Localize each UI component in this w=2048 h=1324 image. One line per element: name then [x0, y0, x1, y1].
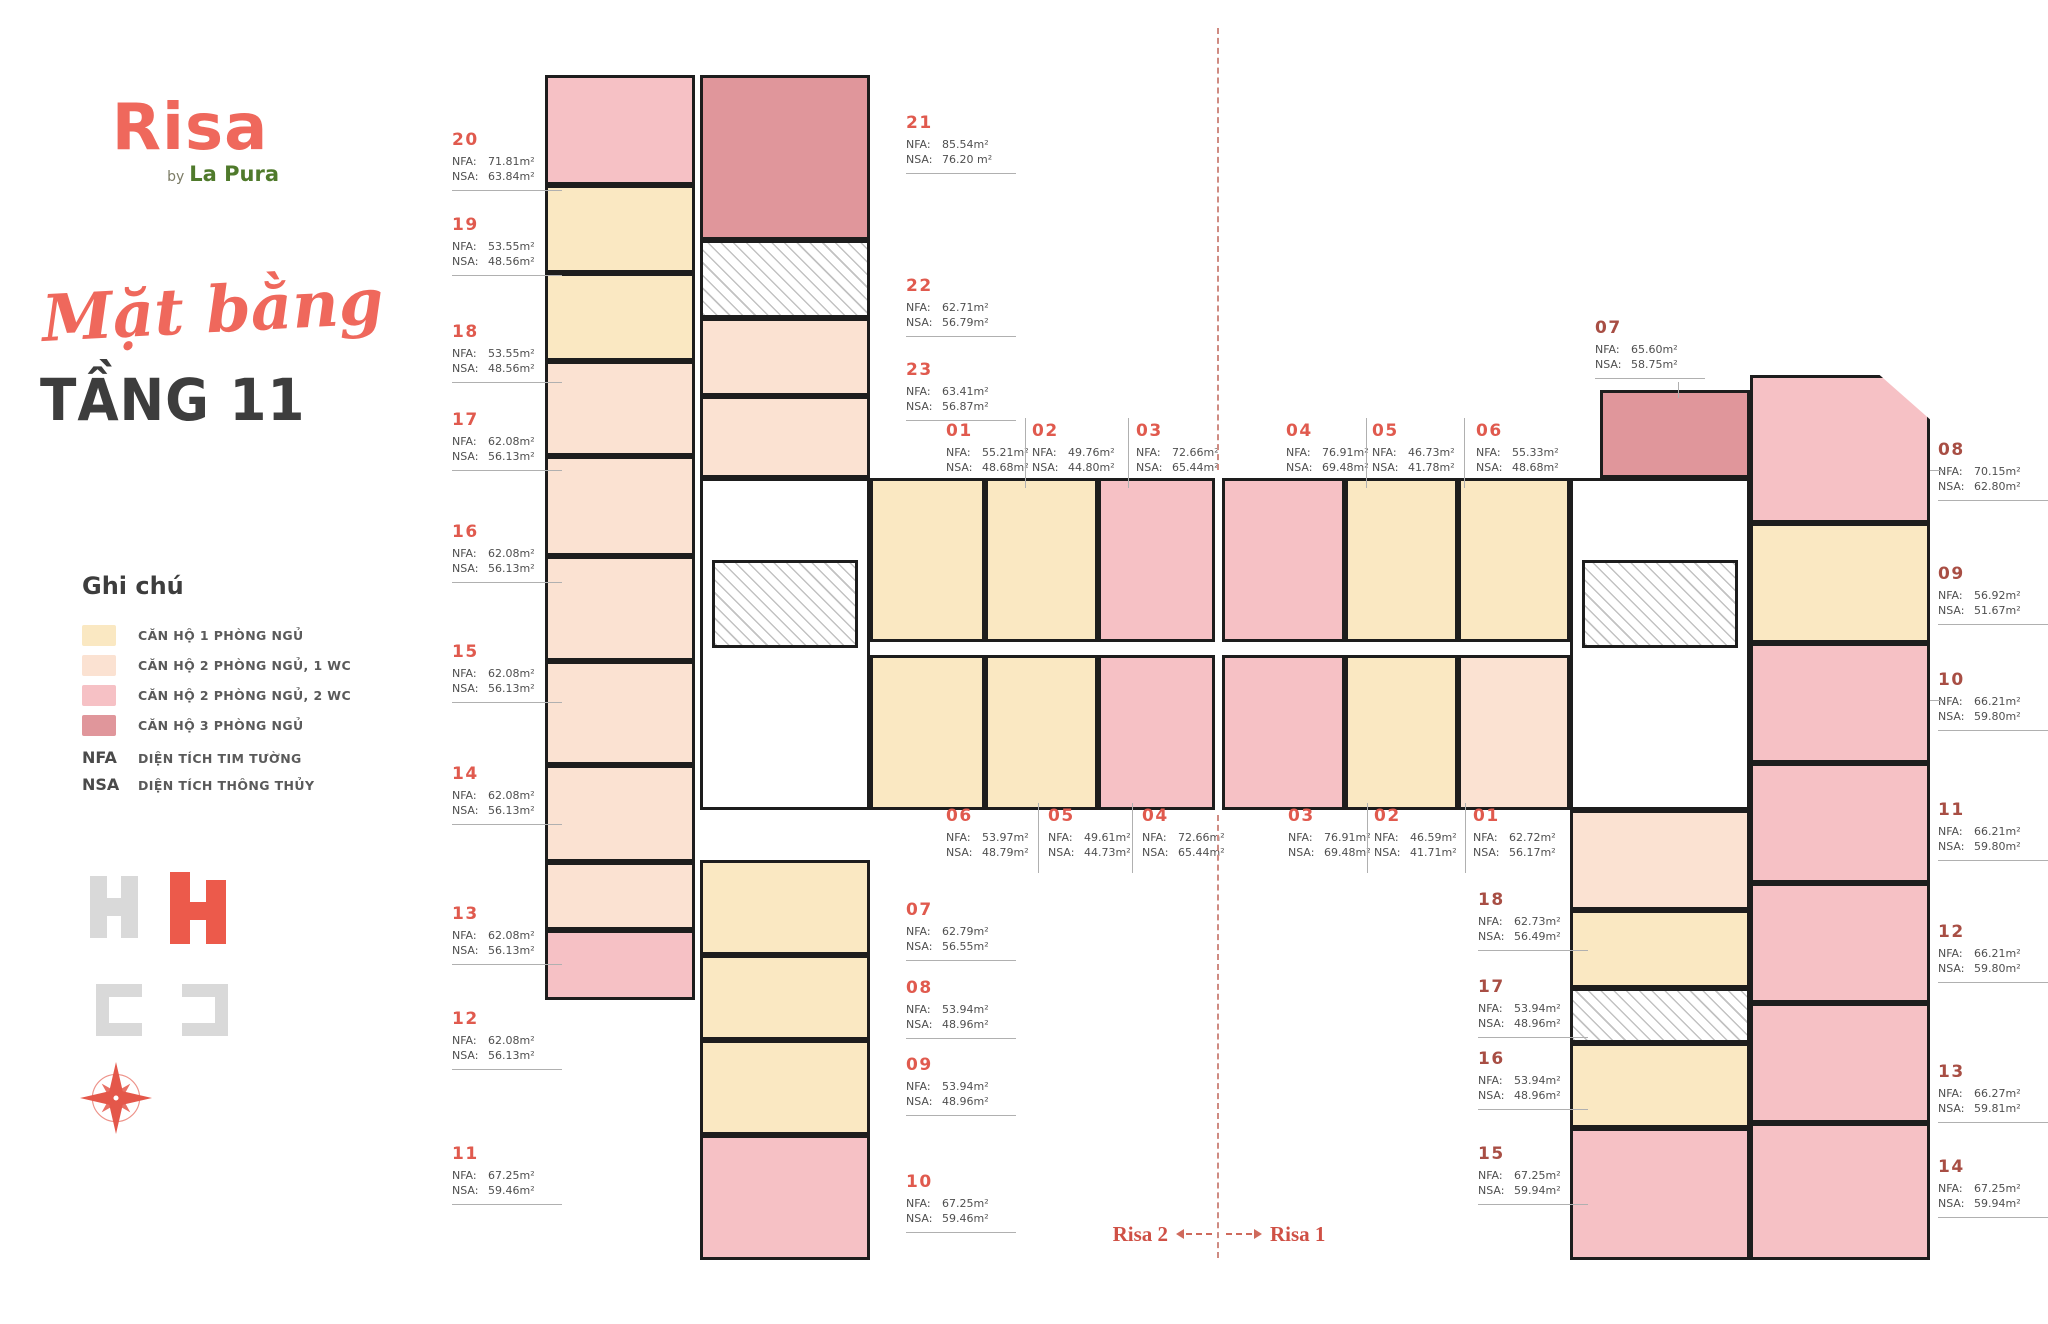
page-title-floor: TẦNG 11 [40, 366, 305, 434]
area-key: NSA: [906, 1017, 942, 1032]
legend-swatch-t3 [82, 685, 116, 706]
area-key: NFA: [1938, 464, 1974, 479]
area-value: 72.66m² [1172, 445, 1219, 460]
area-value: 53.55m² [488, 346, 535, 361]
area-value: 62.72m² [1509, 830, 1556, 845]
plan-unit-r2-08 [700, 955, 870, 1040]
area-key: NFA: [452, 434, 488, 449]
plan-unit-r2-19 [545, 185, 695, 273]
plan-unit-r2-11 [545, 930, 695, 1000]
area-value: 65.44m² [1172, 460, 1219, 475]
legend-swatch-t4 [82, 715, 116, 736]
unit-label-left_outer-18: 18NFA:53.55m²NSA:48.56m² [452, 322, 562, 383]
unit-label-risa1_right-11: 11NFA:66.21m²NSA:59.80m² [1938, 800, 2048, 861]
legend-abbr-NFA: NFADIỆN TÍCH TIM TƯỜNG [82, 748, 314, 775]
area-row: NFA:53.55m² [452, 346, 562, 361]
area-row: NSA:59.81m² [1938, 1101, 2048, 1116]
area-row: NSA:56.13m² [452, 943, 562, 958]
area-row: NSA:59.80m² [1938, 839, 2048, 854]
legend-abbreviations: NFADIỆN TÍCH TIM TƯỜNGNSADIỆN TÍCH THÔNG… [82, 748, 314, 802]
area-row: NFA:66.27m² [1938, 1086, 2048, 1101]
area-key: NFA: [1478, 1001, 1514, 1016]
unit-number: 09 [906, 1055, 1016, 1075]
unit-label-left_outer-20: 20NFA:71.81m²NSA:63.84m² [452, 130, 562, 191]
area-key: NSA: [452, 254, 488, 269]
unit-number: 11 [452, 1144, 562, 1164]
area-key: NFA: [1288, 830, 1324, 845]
area-row: NSA:48.96m² [906, 1017, 1016, 1032]
unit-number: 06 [1476, 421, 1586, 441]
area-value: 59.46m² [488, 1183, 535, 1198]
plan-unit-c-01 [870, 478, 985, 642]
area-key: NFA: [1595, 342, 1631, 357]
unit-label-center_top-03: 03NFA:72.66m²NSA:65.44m² [1136, 421, 1246, 475]
area-key: NFA: [1478, 914, 1514, 929]
plan-unit-r1-08 [1750, 375, 1930, 523]
area-row: NFA:62.08m² [452, 546, 562, 561]
unit-label-center_top-06: 06NFA:55.33m²NSA:48.68m² [1476, 421, 1586, 475]
area-key: NSA: [946, 845, 982, 860]
unit-label-risa1_right-08: 08NFA:70.15m²NSA:62.80m² [1938, 440, 2048, 501]
area-value: 76.91m² [1324, 830, 1371, 845]
logo-by: by [167, 169, 184, 185]
area-value: 56.87m² [942, 399, 989, 414]
brand-logo: Risa byLa Pura [95, 96, 285, 186]
area-row: NSA:62.80m² [1938, 479, 2048, 494]
area-key: NFA: [1938, 588, 1974, 603]
area-value: 76.20 m² [942, 152, 992, 167]
unit-label-risa1_inner-16: 16NFA:53.94m²NSA:48.96m² [1478, 1049, 1588, 1110]
area-value: 62.08m² [488, 788, 535, 803]
area-key: NSA: [1473, 845, 1509, 860]
area-row: NSA:48.68m² [1476, 460, 1586, 475]
leader-line [1930, 470, 1944, 471]
area-row: NFA:53.94m² [1478, 1001, 1588, 1016]
plan-unit-c-01b [1458, 655, 1570, 810]
area-row: NSA:48.96m² [1478, 1088, 1588, 1103]
plan-unit-r1-09 [1750, 523, 1930, 643]
area-key: NSA: [452, 561, 488, 576]
plan-unit-c-03 [1098, 478, 1215, 642]
area-key: NSA: [1938, 603, 1974, 618]
area-value: 41.71m² [1410, 845, 1457, 860]
area-row: NFA:62.08m² [452, 928, 562, 943]
area-value: 49.76m² [1068, 445, 1115, 460]
legend-abbr-NSA: NSADIỆN TÍCH THÔNG THỦY [82, 775, 314, 802]
wing-label-risa1: Risa 1 [1270, 1222, 1358, 1247]
area-value: 48.96m² [942, 1017, 989, 1032]
unit-label-left_outer-19: 19NFA:53.55m²NSA:48.56m² [452, 215, 562, 276]
area-value: 48.96m² [1514, 1088, 1561, 1103]
arrow-left-icon [1176, 1229, 1184, 1239]
unit-number: 19 [452, 215, 562, 235]
area-value: 59.80m² [1974, 709, 2021, 724]
area-row: NFA:67.25m² [1478, 1168, 1588, 1183]
plan-unit-r1-core-a [1582, 560, 1738, 648]
area-value: 41.78m² [1408, 460, 1455, 475]
unit-label-center_top-02: 02NFA:49.76m²NSA:44.80m² [1032, 421, 1142, 475]
area-key: NSA: [1142, 845, 1178, 860]
area-value: 56.49m² [1514, 929, 1561, 944]
arrow-right-icon [1254, 1229, 1262, 1239]
area-key: NSA: [1938, 1196, 1974, 1211]
area-row: NSA:56.49m² [1478, 929, 1588, 944]
plan-unit-c-02b [1345, 655, 1458, 810]
area-value: 56.92m² [1974, 588, 2021, 603]
area-row: NSA:65.44m² [1142, 845, 1252, 860]
area-value: 53.94m² [1514, 1073, 1561, 1088]
plan-unit-r2-10 [700, 1135, 870, 1260]
abbr-label: DIỆN TÍCH THÔNG THỦY [138, 778, 314, 793]
area-row: NSA:48.56m² [452, 254, 562, 269]
abbr-label: DIỆN TÍCH TIM TƯỜNG [138, 751, 302, 766]
area-row: NFA:67.25m² [452, 1168, 562, 1183]
unit-label-center_bottom-01: 01NFA:62.72m²NSA:56.17m² [1473, 806, 1583, 860]
area-value: 85.54m² [942, 137, 989, 152]
area-key: NSA: [1938, 479, 1974, 494]
area-value: 53.94m² [942, 1079, 989, 1094]
area-row: NFA:62.71m² [906, 300, 1016, 315]
legend-label: CĂN HỘ 2 PHÒNG NGỦ, 2 WC [138, 688, 351, 703]
area-value: 71.81m² [488, 154, 535, 169]
logo-byline: byLa Pura [95, 162, 285, 186]
area-row: NFA:66.21m² [1938, 946, 2048, 961]
area-key: NFA: [906, 137, 942, 152]
unit-label-risa1_top-07: 07NFA:65.60m²NSA:58.75m² [1595, 318, 1705, 379]
unit-label-center_bottom-04: 04NFA:72.66m²NSA:65.44m² [1142, 806, 1252, 860]
area-row: NFA:62.08m² [452, 434, 562, 449]
area-key: NSA: [1136, 460, 1172, 475]
area-value: 55.33m² [1512, 445, 1559, 460]
plan-unit-r1-15 [1570, 1128, 1750, 1260]
area-row: NFA:85.54m² [906, 137, 1016, 152]
keyplan-current-building [170, 872, 226, 944]
area-key: NFA: [452, 666, 488, 681]
area-value: 67.25m² [942, 1196, 989, 1211]
plan-unit-r2-15 [545, 556, 695, 661]
unit-number: 13 [1938, 1062, 2048, 1082]
area-key: NFA: [452, 1168, 488, 1183]
unit-number: 06 [946, 806, 1056, 826]
unit-label-risa2_inner_bottom-08: 08NFA:53.94m²NSA:48.96m² [906, 978, 1016, 1039]
area-key: NSA: [452, 943, 488, 958]
area-key: NFA: [1938, 946, 1974, 961]
area-row: NFA:62.08m² [452, 1033, 562, 1048]
plan-unit-r1-core-c [1570, 988, 1750, 1043]
area-key: NFA: [946, 830, 982, 845]
area-key: NFA: [1478, 1073, 1514, 1088]
area-row: NSA:41.78m² [1372, 460, 1482, 475]
area-key: NFA: [906, 924, 942, 939]
unit-number: 08 [1938, 440, 2048, 460]
area-key: NSA: [452, 803, 488, 818]
area-row: NFA:62.79m² [906, 924, 1016, 939]
unit-number: 02 [1374, 806, 1484, 826]
area-row: NFA:46.59m² [1374, 830, 1484, 845]
area-value: 56.17m² [1509, 845, 1556, 860]
plan-unit-r1-11 [1750, 763, 1930, 883]
floorplan-page: Risa byLa Pura Mặt bằng TẦNG 11 Ghi chú … [0, 0, 2048, 1324]
leader-line [1025, 418, 1026, 488]
area-row: NFA:62.08m² [452, 666, 562, 681]
area-row: NSA:56.79m² [906, 315, 1016, 330]
unit-label-risa2_inner_bottom-09: 09NFA:53.94m²NSA:48.96m² [906, 1055, 1016, 1116]
area-row: NFA:55.33m² [1476, 445, 1586, 460]
area-value: 53.55m² [488, 239, 535, 254]
area-key: NSA: [1938, 961, 1974, 976]
area-key: NFA: [1938, 1086, 1974, 1101]
area-value: 66.21m² [1974, 946, 2021, 961]
area-key: NSA: [452, 681, 488, 696]
area-value: 59.94m² [1514, 1183, 1561, 1198]
area-row: NSA:56.13m² [452, 561, 562, 576]
area-value: 44.73m² [1084, 845, 1131, 860]
area-key: NFA: [906, 1196, 942, 1211]
unit-number: 15 [1478, 1144, 1588, 1164]
area-row: NSA:56.13m² [452, 449, 562, 464]
area-key: NSA: [452, 169, 488, 184]
area-value: 59.80m² [1974, 961, 2021, 976]
area-value: 63.41m² [942, 384, 989, 399]
legend-heading: Ghi chú [82, 572, 184, 600]
area-value: 69.48m² [1322, 460, 1369, 475]
area-row: NFA:53.94m² [906, 1002, 1016, 1017]
plan-unit-r2-12 [545, 862, 695, 930]
area-key: NFA: [452, 346, 488, 361]
area-row: NSA:59.46m² [906, 1211, 1016, 1226]
area-key: NSA: [1938, 709, 1974, 724]
area-key: NFA: [1938, 824, 1974, 839]
unit-number: 14 [1938, 1157, 2048, 1177]
area-row: NSA:44.80m² [1032, 460, 1142, 475]
unit-label-left_outer-11: 11NFA:67.25m²NSA:59.46m² [452, 1144, 562, 1205]
area-value: 56.13m² [488, 561, 535, 576]
unit-label-risa2_inner_top-22: 22NFA:62.71m²NSA:56.79m² [906, 276, 1016, 337]
area-key: NSA: [452, 361, 488, 376]
plan-unit-c-04b [1098, 655, 1215, 810]
area-value: 70.15m² [1974, 464, 2021, 479]
area-value: 48.79m² [982, 845, 1029, 860]
area-key: NSA: [1938, 1101, 1974, 1116]
plan-unit-r1-10 [1750, 643, 1930, 763]
area-row: NFA:53.94m² [906, 1079, 1016, 1094]
leader-line [1366, 418, 1367, 488]
leader-line [1930, 700, 1944, 701]
area-value: 67.25m² [488, 1168, 535, 1183]
area-key: NFA: [1048, 830, 1084, 845]
area-key: NSA: [1595, 357, 1631, 372]
area-value: 46.59m² [1410, 830, 1457, 845]
area-key: NSA: [1288, 845, 1324, 860]
area-key: NFA: [906, 1079, 942, 1094]
area-row: NSA:48.96m² [1478, 1016, 1588, 1031]
unit-number: 07 [906, 900, 1016, 920]
area-key: NSA: [1478, 929, 1514, 944]
unit-label-risa2_inner_top-21: 21NFA:85.54m²NSA:76.20 m² [906, 113, 1016, 174]
legend-label: CĂN HỘ 2 PHÒNG NGỦ, 1 WC [138, 658, 351, 673]
unit-label-risa2_inner_top-23: 23NFA:63.41m²NSA:56.87m² [906, 360, 1016, 421]
plan-unit-c-04 [1222, 478, 1345, 642]
unit-number: 03 [1136, 421, 1246, 441]
legend-items: CĂN HỘ 1 PHÒNG NGỦCĂN HỘ 2 PHÒNG NGỦ, 1 … [82, 620, 351, 740]
plan-unit-r1-16 [1570, 1043, 1750, 1128]
area-value: 62.08m² [488, 666, 535, 681]
abbr-key: NSA [82, 775, 138, 794]
area-key: NFA: [452, 154, 488, 169]
leader-line [1464, 418, 1465, 488]
plan-unit-r2-22 [700, 318, 870, 396]
area-value: 53.97m² [982, 830, 1029, 845]
plan-unit-r2-21 [700, 75, 870, 240]
area-key: NSA: [452, 1048, 488, 1063]
unit-label-left_outer-15: 15NFA:62.08m²NSA:56.13m² [452, 642, 562, 703]
area-key: NFA: [906, 300, 942, 315]
area-key: NFA: [452, 546, 488, 561]
area-value: 62.79m² [942, 924, 989, 939]
plan-unit-r1-07 [1600, 390, 1750, 478]
leader-line [1038, 803, 1039, 873]
area-key: NFA: [1476, 445, 1512, 460]
area-value: 62.08m² [488, 1033, 535, 1048]
unit-number: 05 [1372, 421, 1482, 441]
legend-item-t2: CĂN HỘ 2 PHÒNG NGỦ, 1 WC [82, 650, 351, 680]
plan-unit-r2-13 [545, 765, 695, 862]
area-row: NSA:59.94m² [1478, 1183, 1588, 1198]
unit-number: 21 [906, 113, 1016, 133]
area-key: NFA: [946, 445, 982, 460]
area-key: NSA: [906, 315, 942, 330]
unit-label-left_outer-14: 14NFA:62.08m²NSA:56.13m² [452, 764, 562, 825]
area-value: 62.08m² [488, 546, 535, 561]
leader-line [1132, 803, 1133, 873]
plan-unit-r2-18 [545, 273, 695, 361]
unit-label-left_outer-16: 16NFA:62.08m²NSA:56.13m² [452, 522, 562, 583]
area-value: 67.25m² [1974, 1181, 2021, 1196]
plan-unit-r2-09 [700, 1040, 870, 1135]
area-row: NFA:53.94m² [1478, 1073, 1588, 1088]
area-row: NSA:59.80m² [1938, 961, 2048, 976]
plan-unit-c-05b [985, 655, 1098, 810]
unit-label-left_outer-12: 12NFA:62.08m²NSA:56.13m² [452, 1009, 562, 1070]
area-value: 56.13m² [488, 449, 535, 464]
area-value: 51.67m² [1974, 603, 2021, 618]
unit-number: 18 [452, 322, 562, 342]
area-key: NFA: [452, 788, 488, 803]
area-row: NFA:62.73m² [1478, 914, 1588, 929]
unit-label-risa1_inner-15: 15NFA:67.25m²NSA:59.94m² [1478, 1144, 1588, 1205]
area-key: NSA: [1478, 1183, 1514, 1198]
plan-unit-r1-14 [1750, 1123, 1930, 1260]
area-key: NSA: [906, 939, 942, 954]
plan-unit-r2-07 [700, 860, 870, 955]
leader-line [1465, 803, 1466, 873]
area-key: NFA: [1372, 445, 1408, 460]
area-row: NFA:72.66m² [1136, 445, 1246, 460]
area-key: NSA: [452, 449, 488, 464]
unit-number: 07 [1595, 318, 1705, 338]
logo-sub-brand: La Pura [189, 162, 279, 186]
area-value: 56.13m² [488, 1048, 535, 1063]
area-key: NFA: [1938, 1181, 1974, 1196]
unit-label-risa2_inner_bottom-07: 07NFA:62.79m²NSA:56.55m² [906, 900, 1016, 961]
area-row: NSA:56.55m² [906, 939, 1016, 954]
area-value: 62.80m² [1974, 479, 2021, 494]
legend-label: CĂN HỘ 1 PHÒNG NGỦ [138, 628, 304, 643]
dash-right [1226, 1233, 1252, 1235]
area-key: NSA: [1048, 845, 1084, 860]
area-key: NFA: [906, 384, 942, 399]
area-row: NSA:48.56m² [452, 361, 562, 376]
unit-label-risa2_inner_bottom-10: 10NFA:67.25m²NSA:59.46m² [906, 1172, 1016, 1233]
plan-unit-r1-13 [1750, 1003, 1930, 1123]
area-key: NSA: [906, 152, 942, 167]
area-key: NFA: [452, 928, 488, 943]
area-key: NFA: [1473, 830, 1509, 845]
area-value: 56.13m² [488, 681, 535, 696]
area-row: NFA:49.76m² [1032, 445, 1142, 460]
area-key: NFA: [1142, 830, 1178, 845]
unit-number: 16 [452, 522, 562, 542]
unit-number: 01 [1473, 806, 1583, 826]
area-key: NFA: [1478, 1168, 1514, 1183]
area-row: NSA:56.13m² [452, 1048, 562, 1063]
area-key: NSA: [1286, 460, 1322, 475]
unit-number: 12 [452, 1009, 562, 1029]
area-key: NSA: [1478, 1088, 1514, 1103]
legend-label: CĂN HỘ 3 PHÒNG NGỦ [138, 718, 304, 733]
unit-number: 10 [906, 1172, 1016, 1192]
unit-label-risa1_right-12: 12NFA:66.21m²NSA:59.80m² [1938, 922, 2048, 983]
area-key: NFA: [1374, 830, 1410, 845]
area-row: NSA:48.79m² [946, 845, 1056, 860]
area-value: 76.91m² [1322, 445, 1369, 460]
area-row: NSA:59.94m² [1938, 1196, 2048, 1211]
area-row: NSA:58.75m² [1595, 357, 1705, 372]
area-value: 67.25m² [1514, 1168, 1561, 1183]
area-key: NFA: [1136, 445, 1172, 460]
area-value: 66.21m² [1974, 694, 2021, 709]
unit-number: 11 [1938, 800, 2048, 820]
unit-number: 23 [906, 360, 1016, 380]
abbr-key: NFA [82, 748, 138, 767]
area-row: NFA:62.72m² [1473, 830, 1583, 845]
area-value: 65.60m² [1631, 342, 1678, 357]
unit-number: 04 [1142, 806, 1252, 826]
area-value: 56.13m² [488, 803, 535, 818]
area-row: NSA:59.80m² [1938, 709, 2048, 724]
unit-number: 16 [1478, 1049, 1588, 1069]
area-value: 66.27m² [1974, 1086, 2021, 1101]
area-value: 56.13m² [488, 943, 535, 958]
area-row: NFA:53.97m² [946, 830, 1056, 845]
unit-number: 18 [1478, 890, 1588, 910]
area-key: NSA: [1476, 460, 1512, 475]
unit-label-risa1_inner-18: 18NFA:62.73m²NSA:56.49m² [1478, 890, 1588, 951]
legend-item-t4: CĂN HỘ 3 PHÒNG NGỦ [82, 710, 351, 740]
area-row: NFA:70.15m² [1938, 464, 2048, 479]
area-value: 46.73m² [1408, 445, 1455, 460]
area-key: NSA: [1478, 1016, 1514, 1031]
area-key: NFA: [1286, 445, 1322, 460]
area-value: 66.21m² [1974, 824, 2021, 839]
unit-label-center_bottom-06: 06NFA:53.97m²NSA:48.79m² [946, 806, 1056, 860]
area-row: NFA:67.25m² [906, 1196, 1016, 1211]
area-row: NSA:65.44m² [1136, 460, 1246, 475]
area-row: NFA:56.92m² [1938, 588, 2048, 603]
unit-number: 12 [1938, 922, 2048, 942]
area-row: NSA:56.13m² [452, 681, 562, 696]
legend-swatch-t2 [82, 655, 116, 676]
